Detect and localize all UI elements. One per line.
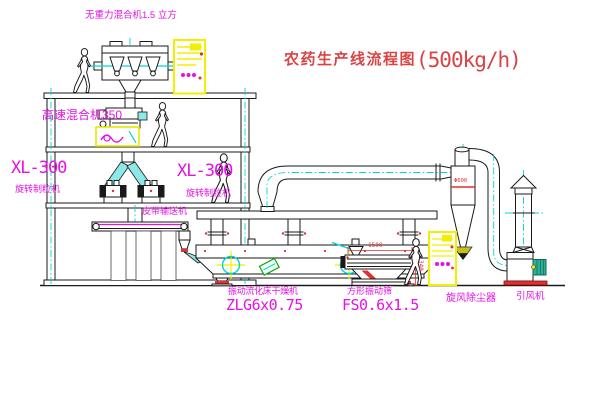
label-gravity-mixer: 无重力混合机1.5 立方 <box>85 11 177 21</box>
control-cabinet-lower <box>429 232 456 285</box>
label-sieve: 方形振动筛 <box>347 287 392 296</box>
fluid-bed-dryer <box>196 211 441 286</box>
title-chinese: 农药生产线流程图 <box>284 51 416 68</box>
label-sieve-model: FS0.6x1.5 <box>342 298 419 313</box>
belt-conveyor <box>92 222 188 281</box>
label-granulator-model-mid: XL-300 <box>177 163 232 180</box>
label-fan: 引风机 <box>516 292 545 302</box>
label-granulator-left: 旋转制粒机 <box>15 185 60 194</box>
control-cabinet-upper <box>174 40 205 94</box>
exhaust-duct <box>258 164 459 212</box>
label-granulator-model-left: XL-300 <box>11 160 66 177</box>
drawing-title: 农药生产线流程图(500kg/h) <box>284 50 521 71</box>
dryer-foot-left <box>212 278 232 286</box>
title-capacity: (500kg/h) <box>416 48 521 72</box>
pesticide-line-flow-diagram: 农药生产线流程图(500kg/h) 无重力混合机1.5 立方 高速混合机350 … <box>0 0 600 403</box>
label-granulator-mid: 旋转制粒机 <box>186 189 231 198</box>
label-dryer-model: ZLG6x0.75 <box>226 298 303 313</box>
dimension-cyclone-diameter: Φ600 <box>454 179 467 185</box>
high-speed-mixer <box>96 98 147 146</box>
label-cyclone: 旋风除尘器 <box>446 294 496 304</box>
dimension-sieve-length: 1500 <box>368 243 382 249</box>
person-figure <box>152 102 169 146</box>
label-belt-conveyor: 皮带输送机 <box>142 207 187 216</box>
person-figure <box>74 48 91 92</box>
discharge-chute <box>128 205 142 224</box>
induced-draft-fan <box>504 253 547 286</box>
label-high-speed-mixer: 高速混合机350 <box>42 109 122 121</box>
dryer-hood-stubs <box>205 219 421 245</box>
label-dryer: 振动流化床干燥机 <box>228 287 298 296</box>
dimension-sieve-height: 340 <box>417 260 423 271</box>
